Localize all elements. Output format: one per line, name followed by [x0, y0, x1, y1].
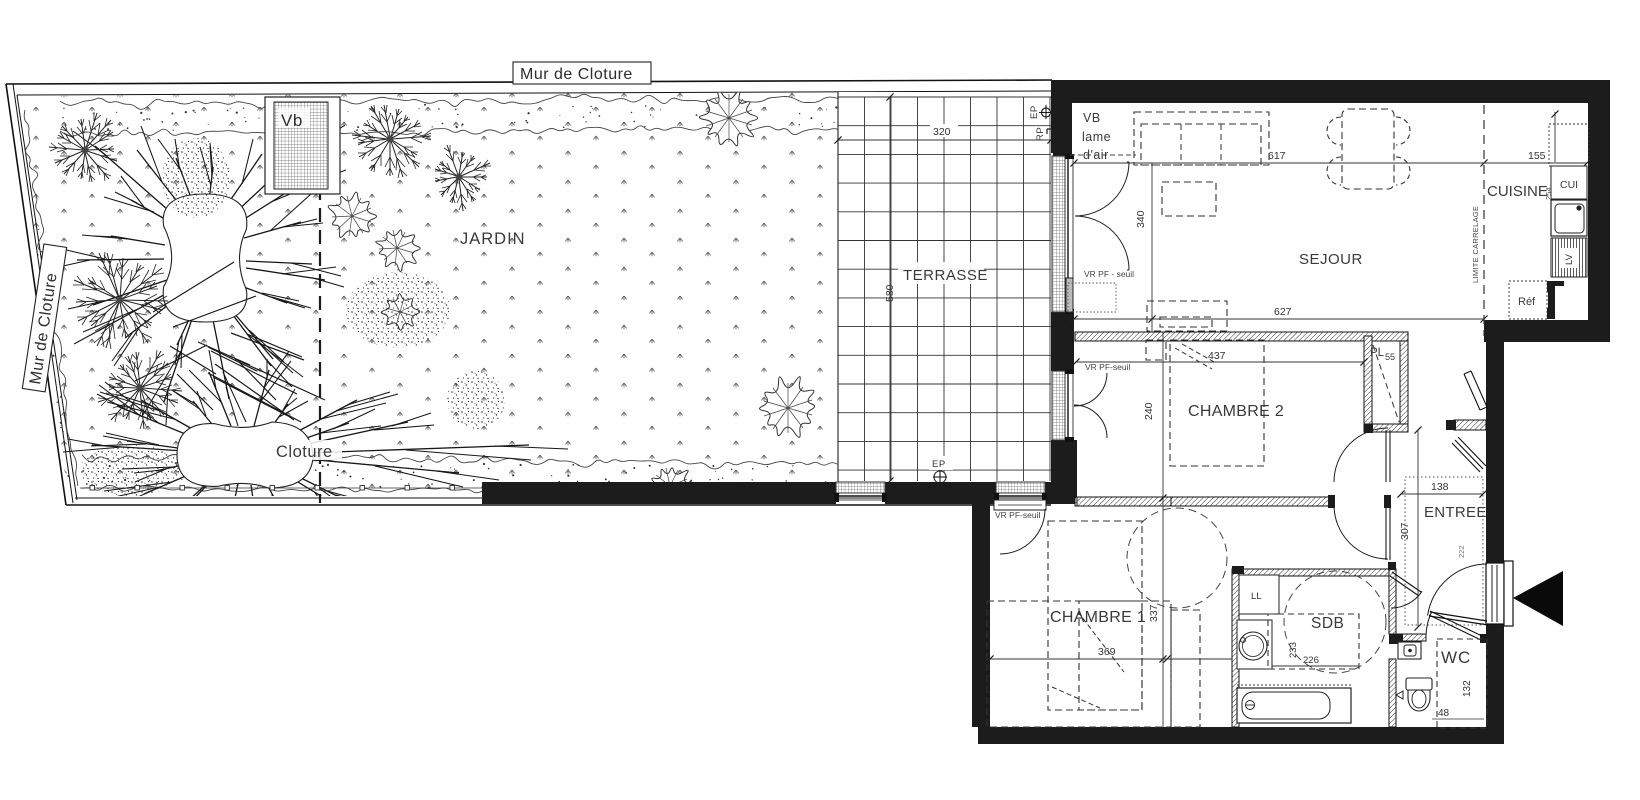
svg-text:LV: LV [1564, 253, 1575, 265]
svg-text:Cloture: Cloture [276, 443, 333, 461]
svg-text:Réf: Réf [1518, 296, 1536, 308]
svg-text:VR PF - seuil: VR PF - seuil [1084, 269, 1134, 279]
svg-text:SEJOUR: SEJOUR [1299, 251, 1363, 268]
svg-text:48: 48 [1438, 708, 1450, 719]
svg-text:Mur de Cloture: Mur de Cloture [520, 66, 633, 83]
svg-text:VR PF-seuil: VR PF-seuil [995, 510, 1040, 520]
svg-text:TERRASSE: TERRASSE [903, 267, 988, 284]
svg-text:337: 337 [1148, 604, 1160, 622]
svg-text:CUI: CUI [1560, 179, 1578, 191]
svg-text:EP: EP [932, 459, 946, 470]
svg-text:155: 155 [1528, 150, 1546, 162]
svg-text:580: 580 [884, 284, 896, 302]
svg-text:WC: WC [1441, 648, 1471, 667]
svg-text:240: 240 [1143, 402, 1155, 420]
svg-text:369: 369 [1098, 646, 1116, 658]
svg-text:VB: VB [1083, 111, 1101, 125]
svg-text:EP: EP [1029, 105, 1040, 119]
svg-text:340: 340 [1135, 210, 1147, 228]
svg-text:CHAMBRE 1: CHAMBRE 1 [1050, 609, 1146, 626]
svg-text:CUISINE: CUISINE [1487, 183, 1548, 200]
svg-text:254: 254 [1544, 187, 1553, 200]
svg-text:138: 138 [1431, 481, 1449, 493]
svg-text:320: 320 [933, 126, 951, 138]
svg-text:d'air: d'air [1083, 148, 1109, 162]
svg-text:Vb: Vb [281, 111, 303, 130]
svg-text:VR PF-seuil: VR PF-seuil [1085, 362, 1130, 372]
svg-text:226: 226 [1303, 655, 1319, 666]
svg-text:RP: RP [1035, 127, 1046, 141]
svg-text:CHAMBRE 2: CHAMBRE 2 [1188, 403, 1284, 420]
svg-text:ENTREE: ENTREE [1424, 504, 1487, 521]
svg-text:LIMITE CARRELAGE: LIMITE CARRELAGE [1471, 206, 1480, 283]
svg-text:55: 55 [1385, 352, 1395, 362]
svg-text:SDB: SDB [1311, 615, 1344, 632]
svg-text:627: 627 [1274, 306, 1292, 318]
svg-text:132: 132 [1462, 680, 1473, 697]
svg-text:JARDIN: JARDIN [460, 230, 526, 248]
svg-text:617: 617 [1268, 150, 1286, 162]
svg-text:LL: LL [1251, 591, 1262, 602]
svg-text:lame: lame [1082, 130, 1111, 144]
svg-text:222: 222 [1457, 545, 1466, 558]
